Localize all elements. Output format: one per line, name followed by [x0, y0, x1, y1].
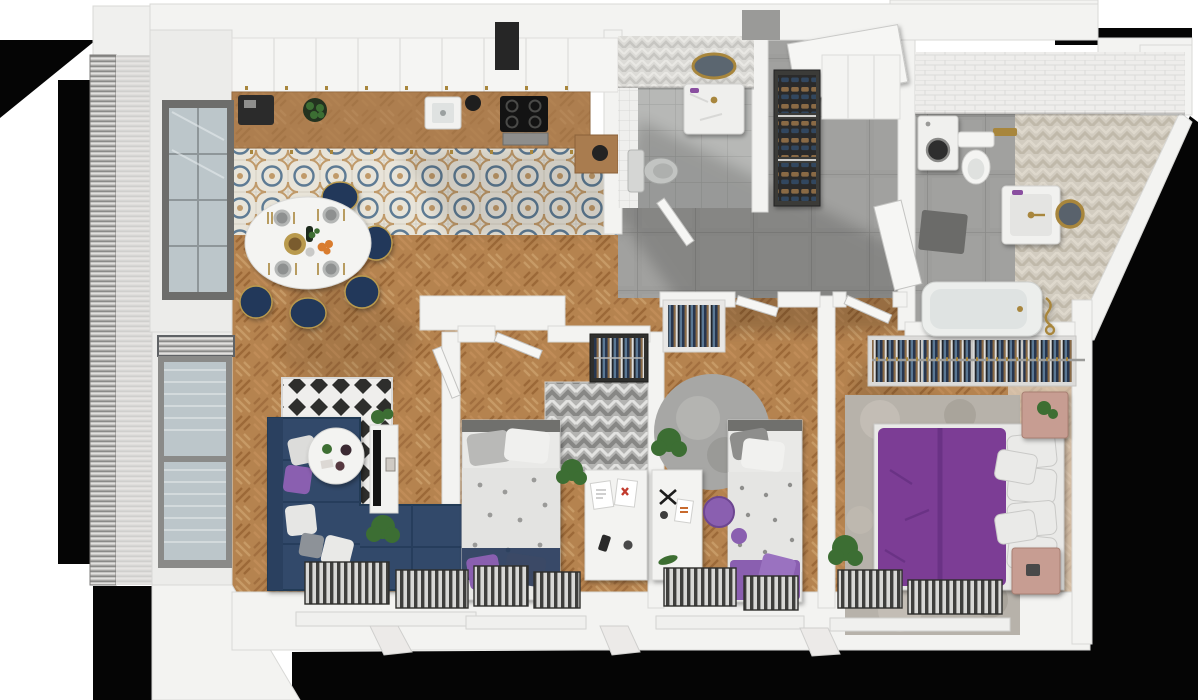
oval-dining-table [245, 197, 371, 289]
plate [274, 210, 291, 227]
sill-bedroom1 [466, 616, 586, 629]
tall-dark-cabinet [495, 22, 519, 70]
wall-top [150, 4, 1098, 40]
desk-1 [585, 470, 647, 580]
plate [323, 261, 340, 278]
radiator-master-2 [908, 580, 1002, 614]
wall-master-top-b [893, 292, 907, 307]
purple-stool [731, 528, 747, 544]
coffee-table [308, 428, 364, 484]
toilet-seat [968, 158, 985, 179]
induction-hob [500, 96, 548, 132]
radiator-bed1-1 [474, 566, 528, 606]
entry-closet [822, 55, 900, 119]
sink-drain [440, 110, 446, 116]
gold-faucet [711, 97, 718, 104]
shoe-rack [774, 70, 820, 206]
shoe-tier-1 [778, 75, 816, 113]
clothes-rail [868, 336, 1085, 386]
toilet-seat [653, 163, 673, 178]
wall-master-top-a [833, 292, 846, 307]
desk-paper [590, 481, 613, 510]
radiator-bed2-2 [744, 576, 798, 610]
small-bowl [305, 247, 314, 256]
radiator-master-1 [838, 570, 902, 608]
coffee-machine-detail [244, 100, 256, 108]
purple-accessories [1012, 190, 1023, 195]
wall-bedroom2-top-b [778, 292, 820, 307]
plate [323, 207, 340, 224]
soap-items [690, 88, 699, 93]
balcony-deck-texture [116, 55, 152, 585]
floor-plan-stage [0, 0, 1198, 700]
shoe-tier-3 [778, 163, 816, 201]
bedroom2-wardrobe-clothes [668, 305, 720, 347]
radiator-living-2 [396, 570, 468, 608]
tv [373, 430, 381, 506]
cushion-white [285, 504, 318, 537]
pot-on-counter [465, 95, 481, 111]
radiator-bed1-2 [534, 572, 580, 608]
sill-master [830, 618, 1010, 631]
shoe-tier-2 [778, 119, 816, 157]
sill-living [296, 612, 476, 626]
sill-bedroom2 [656, 616, 804, 629]
table-bowl-2 [335, 461, 344, 470]
radiator-bed2-1 [664, 568, 736, 606]
dark-doormat [918, 210, 968, 255]
pink-nightstand-1 [1022, 392, 1068, 438]
food-dish [289, 238, 302, 251]
living-window-glass-2 [164, 462, 226, 560]
ink-pot [660, 511, 668, 519]
gold-round-mirror [1057, 201, 1083, 227]
bed1-pillow-white [503, 428, 550, 464]
floor-plan-render [0, 0, 1198, 700]
void-left-strip [58, 80, 93, 564]
coffee-machine [238, 95, 274, 125]
tub-basin [930, 289, 1027, 329]
gold-oval-mirror [693, 54, 735, 78]
gray-curtains [158, 336, 234, 356]
bed-2 [728, 420, 802, 602]
nightstand-bottom [1012, 548, 1060, 594]
cushion-purple [282, 464, 312, 494]
living-window-glass-1 [164, 362, 226, 456]
cushion-gray-pattern [298, 532, 325, 559]
oven-front [503, 133, 548, 145]
toilet-tank [628, 150, 644, 192]
washing-machine [918, 116, 958, 170]
tub-drain [1017, 306, 1023, 312]
kitchen-window [162, 100, 234, 300]
bathtub [922, 282, 1054, 336]
entry-threshold [742, 10, 780, 40]
nightstand-top [1022, 392, 1068, 438]
rug-texture-light [676, 396, 720, 440]
void-below-balcony [93, 586, 152, 700]
bathroom-vanity [1002, 186, 1060, 244]
purple-chair [704, 497, 734, 527]
sofa-backrest [268, 418, 283, 590]
wall-bedroom1-top-a [458, 326, 495, 342]
desk-2 [652, 470, 702, 580]
plate [275, 261, 292, 278]
table-plant [322, 444, 332, 454]
washer-knob [926, 122, 931, 127]
wall-corridor-living [420, 296, 565, 330]
wall-wc-right [752, 36, 768, 212]
desk-cup [623, 540, 632, 549]
framed-picture [386, 458, 395, 471]
wc-vanity [684, 84, 744, 134]
radiator-living-1 [305, 562, 389, 604]
kettle [592, 145, 608, 161]
bed2-pillow-dotted [740, 438, 785, 473]
louvered-railing [90, 55, 116, 585]
upper-cabinets [232, 38, 618, 92]
coffee-table-top [308, 428, 364, 484]
toilet-tank [958, 132, 994, 147]
white-brick-wall [915, 52, 1185, 114]
gold-shower-drain [993, 128, 1017, 136]
washer-door [927, 139, 949, 161]
table-bowl [341, 445, 352, 456]
nightstand-clock [1026, 564, 1040, 576]
